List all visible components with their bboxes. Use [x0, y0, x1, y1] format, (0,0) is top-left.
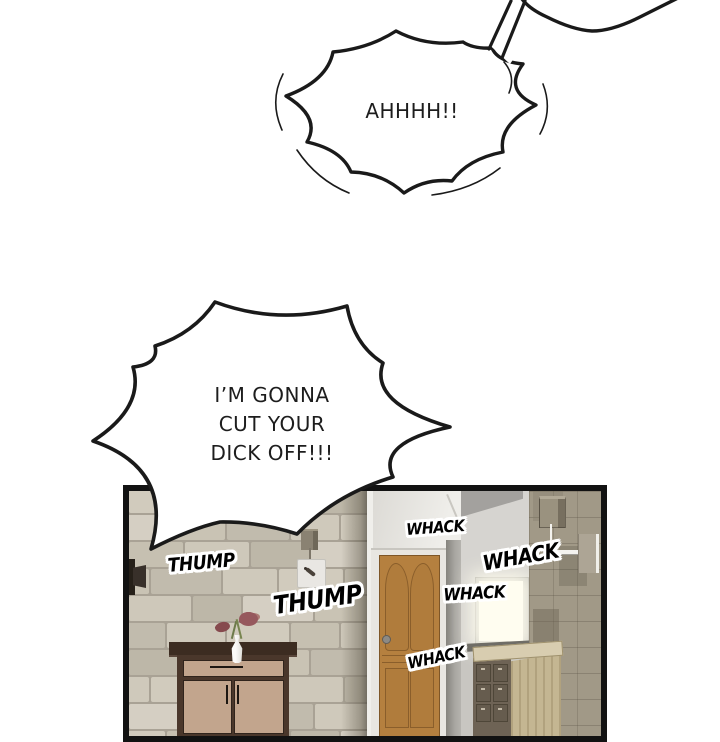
intercom-box [301, 529, 318, 550]
stone-block [227, 515, 289, 540]
door-panel-bottom-right [410, 668, 434, 728]
flower-bloom [239, 612, 258, 626]
bubble-tail-gap [480, 30, 517, 64]
dresser-drawer-knob [481, 668, 485, 670]
comic-panel [123, 485, 607, 742]
stone-block [129, 677, 149, 702]
door-knob [382, 635, 391, 644]
stone-wall-corner-shadow [341, 491, 367, 736]
cabinet-door-right [234, 680, 284, 734]
dresser-drawers [473, 658, 511, 736]
doorway-wall-edge [446, 540, 461, 736]
speedline-accent [276, 62, 548, 195]
door-panel-top-right [410, 563, 434, 651]
door-panel-bottom-left [385, 668, 409, 728]
dresser-drawer-knob [481, 688, 485, 690]
sfx-whack-1: WHACK [406, 516, 465, 539]
stone-block [129, 731, 165, 736]
dresser-drawer-knob [498, 668, 502, 670]
intercom-cord [309, 548, 311, 559]
wooden-door [379, 555, 440, 738]
cabinet-door-handle [226, 685, 228, 704]
stone-block [129, 491, 191, 513]
scream-text: AHHHH!! [327, 97, 497, 126]
stone-block [291, 731, 339, 736]
stone-block [291, 623, 339, 648]
threat-line: DICK OFF!!! [210, 441, 333, 465]
dresser-drawer-cell [493, 704, 508, 722]
dresser-side [511, 651, 561, 736]
dresser-drawer-cell [476, 664, 491, 682]
threat-text: I’M GONNA CUT YOUR DICK OFF!!! [177, 381, 367, 468]
threat-line: CUT YOUR [219, 412, 326, 436]
dresser-drawer-knob [481, 708, 485, 710]
cabinet-door-left [183, 680, 232, 734]
comic-page: { "bubbles": { "scream": { "text": "AHHH… [0, 0, 720, 700]
wall-sconce-shade [133, 565, 146, 588]
wall-vent-box [539, 496, 566, 528]
stone-block [193, 596, 241, 621]
mirror [578, 534, 599, 573]
cabinet-drawer [183, 660, 284, 677]
stone-block [243, 491, 313, 513]
stone-block [129, 623, 165, 648]
offpanel-bubble-edge [520, 0, 720, 31]
stone-block [129, 515, 165, 540]
intercom-hook [304, 567, 307, 570]
stone-block [193, 491, 241, 513]
dresser-drawer-cell [493, 684, 508, 702]
stone-block [129, 596, 191, 621]
cabinet-drawer-handle [210, 666, 243, 668]
stone-block [167, 515, 225, 540]
dresser-drawer-knob [498, 708, 502, 710]
dresser-drawer-cell [493, 664, 508, 682]
dresser-drawer-knob [498, 688, 502, 690]
cabinet-body [177, 655, 289, 736]
bubble-tail [489, 1, 525, 58]
dresser-drawer-cell [476, 684, 491, 702]
threat-line: I’M GONNA [214, 383, 329, 407]
stone-block [223, 569, 277, 594]
dresser-drawer-cell [476, 704, 491, 722]
cabinet-door-handle [237, 685, 239, 704]
sfx-whack-3: WHACK [443, 582, 506, 605]
